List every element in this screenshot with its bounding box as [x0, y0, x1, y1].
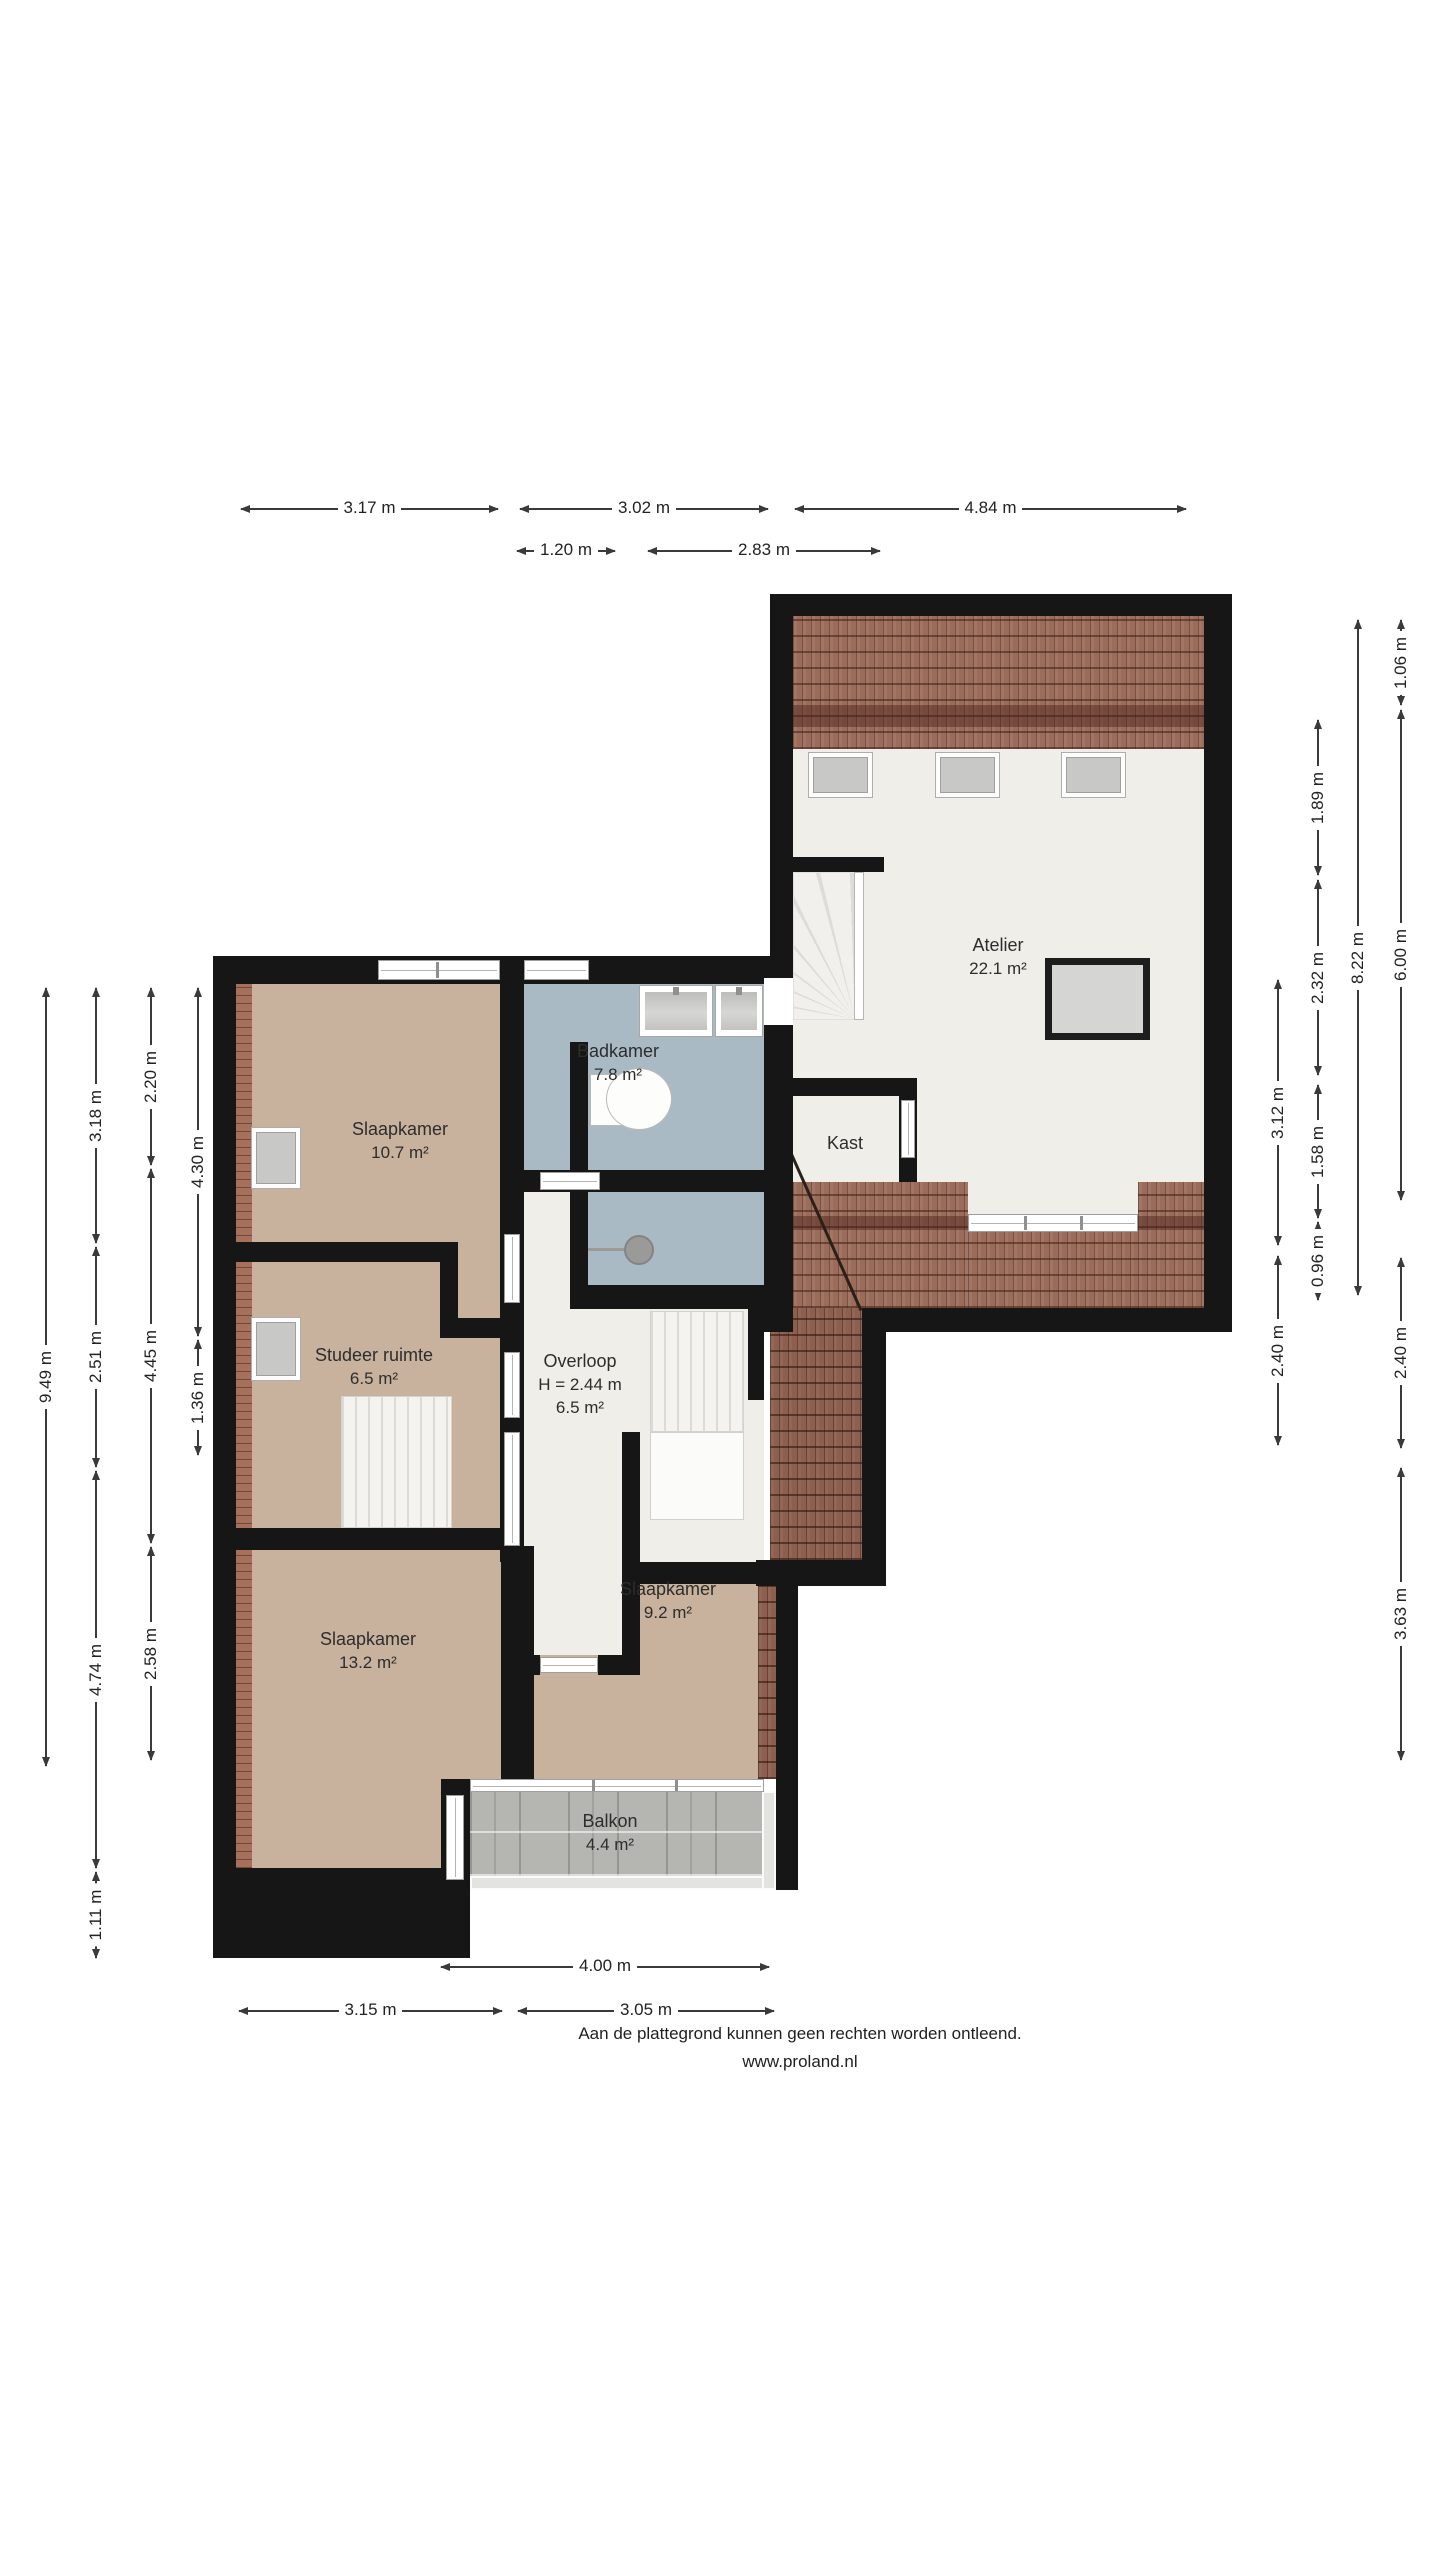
dimension-vertical: 1.36 m [197, 1340, 199, 1455]
dimension-horizontal: 1.20 m [517, 550, 615, 552]
dimension-vertical: 2.51 m [95, 1247, 97, 1467]
dimension-horizontal: 4.00 m [441, 1966, 769, 1968]
room-name: Slaapkamer [352, 1118, 448, 1141]
window-mullion [592, 1780, 595, 1791]
arrowhead-up-icon [1274, 979, 1282, 989]
window-atelier-south [968, 1214, 1138, 1232]
basin-bowl [645, 992, 707, 1030]
room-label-overloop: OverloopH = 2.44 m6.5 m² [538, 1350, 622, 1419]
dimension-label: 4.74 m [86, 1638, 106, 1702]
balkon-railing-bottom [470, 1876, 776, 1890]
shower-head-icon [624, 1235, 654, 1265]
door-corridor-slaapkamer3 [540, 1657, 598, 1673]
dimension-horizontal: 3.05 m [518, 2010, 774, 2012]
arrowhead-left-icon [647, 547, 657, 555]
roof-tiles-atelier-bottom-left [793, 1182, 968, 1308]
door-overloop-studeer [504, 1352, 520, 1418]
dimension-label: 2.83 m [732, 540, 796, 560]
dimension-label: 3.15 m [339, 2000, 403, 2020]
room-label-atelier: Atelier22.1 m² [969, 934, 1027, 980]
arrowhead-right-icon [871, 547, 881, 555]
dimension-vertical: 2.40 m [1400, 1258, 1402, 1448]
wall-corridor-door-jamb-right [598, 1655, 640, 1675]
shower-arm [588, 1248, 628, 1251]
dimension-label: 3.12 m [1268, 1081, 1288, 1145]
wall-corridor-left [501, 1546, 534, 1791]
roof-window-atelier-2 [936, 753, 999, 797]
dimension-label: 1.20 m [534, 540, 598, 560]
room-area: 13.2 m² [320, 1651, 416, 1674]
room-name: Badkamer [577, 1040, 659, 1063]
dimension-label: 4.30 m [188, 1130, 208, 1194]
arrowhead-right-icon [765, 2007, 775, 2015]
arrowhead-up-icon [1397, 1257, 1405, 1267]
dimension-label: 9.49 m [36, 1345, 56, 1409]
dimension-vertical: 2.40 m [1277, 1256, 1279, 1445]
balkon-railing-right [762, 1791, 776, 1890]
room-name: Studeer ruimte [315, 1344, 433, 1367]
room-label-slaapkamer1: Slaapkamer10.7 m² [352, 1118, 448, 1164]
arrowhead-up-icon [92, 1470, 100, 1480]
room-area: 4.4 m² [582, 1833, 637, 1856]
knee-wall-tiles-left [236, 984, 252, 1868]
wall-atelier-bottom [862, 1308, 1232, 1332]
door-gap-atelier-badkamer [764, 978, 793, 1025]
door-overloop-slaapkamer2 [504, 1432, 520, 1546]
washbasin-2 [716, 986, 762, 1036]
dimension-label: 8.22 m [1348, 926, 1368, 990]
wall-block-top [213, 956, 793, 984]
dimension-horizontal: 3.17 m [241, 508, 498, 510]
dimension-label: 1.89 m [1308, 766, 1328, 830]
dimension-label: 2.40 m [1268, 1319, 1288, 1383]
arrowhead-down-icon [1314, 866, 1322, 876]
wall-corridor-right [622, 1432, 640, 1675]
floor-plan: Atelier22.1 m²KastBadkamer7.8 m²Slaapkam… [0, 0, 1440, 2560]
wall-block-left [213, 956, 236, 1958]
room-area: 9.2 m² [620, 1601, 716, 1624]
room-area: 10.7 m² [352, 1141, 448, 1164]
door-kast [901, 1100, 915, 1158]
door-balkon [446, 1795, 464, 1880]
wall-bottom-band [213, 1868, 458, 1958]
roof-window-studeer [252, 1318, 300, 1380]
footer-website: www.proland.nl [0, 2052, 1440, 2072]
roof-stripe-bottom-right [1138, 1216, 1204, 1230]
dimension-vertical: 1.58 m [1317, 1085, 1319, 1218]
arrowhead-down-icon [194, 1446, 202, 1456]
wall-atelier-stair-stub [793, 857, 884, 872]
arrowhead-right-icon [493, 2007, 503, 2015]
arrowhead-up-icon [92, 1871, 100, 1881]
room-name: Kast [827, 1132, 863, 1155]
dimension-label: 2.32 m [1308, 946, 1328, 1010]
dimension-label: 2.40 m [1391, 1321, 1411, 1385]
arrowhead-up-icon [1397, 709, 1405, 719]
arrowhead-down-icon [92, 1234, 100, 1244]
dimension-label: 2.20 m [141, 1045, 161, 1109]
window-mullion [1024, 1216, 1027, 1230]
room-label-slaapkamer2: Slaapkamer13.2 m² [320, 1628, 416, 1674]
arrowhead-right-icon [606, 547, 616, 555]
dimension-horizontal: 4.84 m [795, 508, 1186, 510]
room-label-studeer: Studeer ruimte6.5 m² [315, 1344, 433, 1390]
roof-window-slaapkamer1 [252, 1128, 300, 1188]
dimension-label: 3.05 m [614, 2000, 678, 2020]
room-name: Atelier [969, 934, 1027, 957]
basin-tap-icon [673, 987, 679, 995]
room-name: Balkon [582, 1810, 637, 1833]
floor-overloop-corridor [534, 1546, 622, 1655]
dimension-label: 1.06 m [1391, 631, 1411, 695]
window-mullion [675, 1780, 678, 1791]
dimension-label: 3.02 m [612, 498, 676, 518]
dimension-vertical: 3.18 m [95, 988, 97, 1243]
dimension-label: 1.36 m [188, 1366, 208, 1430]
arrowhead-left-icon [240, 505, 250, 513]
wall-stairwell-east [748, 1308, 764, 1400]
wall-valley-right [862, 1308, 886, 1586]
arrowhead-down-icon [147, 1534, 155, 1544]
stairs-studeer [341, 1396, 452, 1528]
arrowhead-up-icon [1397, 619, 1405, 629]
room-area: 7.8 m² [577, 1063, 659, 1086]
dimension-label: 4.00 m [573, 1956, 637, 1976]
door-badkamer [540, 1172, 600, 1190]
wall-atelier-right [1204, 594, 1232, 1332]
arrowhead-down-icon [1314, 1209, 1322, 1219]
dimension-vertical: 4.30 m [197, 988, 199, 1336]
arrowhead-up-icon [92, 1246, 100, 1256]
window-mullion [1080, 1216, 1083, 1230]
dimension-vertical: 1.06 m [1400, 620, 1402, 705]
arrowhead-up-icon [194, 987, 202, 997]
room-label-kast: Kast [827, 1132, 863, 1155]
dimension-vertical: 9.49 m [45, 988, 47, 1766]
room-name: Slaapkamer [620, 1578, 716, 1601]
wall-shower-bottom [570, 1285, 764, 1309]
arrowhead-down-icon [194, 1327, 202, 1337]
room-area: 22.1 m² [969, 957, 1027, 980]
arrowhead-down-icon [1314, 1066, 1322, 1076]
window-top-badkamer [524, 960, 589, 980]
roof-ridge-stripe [793, 705, 1204, 727]
stairs-atelier-winder [793, 872, 856, 1020]
roof-tiles-valley [770, 1308, 862, 1560]
wall-slk1-studeer [236, 1242, 458, 1262]
dimension-vertical: 1.89 m [1317, 720, 1319, 875]
arrowhead-up-icon [1314, 1084, 1322, 1094]
dimension-label: 6.00 m [1391, 923, 1411, 987]
stairwell-void [650, 1432, 744, 1520]
arrowhead-up-icon [42, 987, 50, 997]
arrowhead-left-icon [517, 2007, 527, 2015]
dimension-vertical: 2.32 m [1317, 880, 1319, 1075]
room-label-badkamer: Badkamer7.8 m² [577, 1040, 659, 1086]
arrowhead-down-icon [147, 1156, 155, 1166]
footer-disclaimer: Aan de plattegrond kunnen geen rechten w… [0, 2024, 1440, 2044]
arrowhead-right-icon [1177, 505, 1187, 513]
dimension-label: 2.58 m [141, 1622, 161, 1686]
arrowhead-up-icon [147, 1546, 155, 1556]
roof-tiles-atelier-top [793, 616, 1204, 749]
wall-badkamer-right [764, 984, 793, 1332]
arrowhead-down-icon [92, 1458, 100, 1468]
roof-tiles-side-strip [758, 1584, 776, 1779]
dimension-vertical: 1.11 m [95, 1872, 97, 1958]
basin-bowl [721, 992, 757, 1030]
arrowhead-left-icon [238, 2007, 248, 2015]
dimension-label: 1.58 m [1308, 1120, 1328, 1184]
window-mullion [436, 962, 439, 978]
dimension-vertical: 4.74 m [95, 1471, 97, 1868]
arrowhead-down-icon [1354, 1286, 1362, 1296]
washbasin-1 [640, 986, 712, 1036]
room-name: Slaapkamer [320, 1628, 416, 1651]
arrowhead-up-icon [1274, 1255, 1282, 1265]
dimension-label: 4.45 m [141, 1324, 161, 1388]
roof-window-atelier-1 [809, 753, 872, 797]
room-label-slaapkamer3: Slaapkamer9.2 m² [620, 1578, 716, 1624]
arrowhead-up-icon [1314, 719, 1322, 729]
arrowhead-left-icon [794, 505, 804, 513]
room-area: 6.5 m² [315, 1367, 433, 1390]
dimension-label: 3.18 m [86, 1084, 106, 1148]
basin-tap-icon [736, 987, 742, 995]
dimension-horizontal: 2.83 m [648, 550, 880, 552]
window-balkon-band [470, 1779, 764, 1792]
room-label-balkon: Balkon4.4 m² [582, 1810, 637, 1856]
arrowhead-up-icon [1397, 1467, 1405, 1477]
arrowhead-down-icon [42, 1757, 50, 1767]
arrowhead-up-icon [1314, 879, 1322, 889]
roof-tiles-atelier-bottom-right [1138, 1182, 1204, 1308]
arrowhead-down-icon [1397, 1439, 1405, 1449]
wall-atelier-top [770, 594, 1232, 616]
room-height: H = 2.44 m [538, 1373, 622, 1396]
wall-slk1-jog [440, 1262, 458, 1338]
arrowhead-left-icon [519, 505, 529, 513]
room-name: Overloop [538, 1350, 622, 1373]
arrowhead-right-icon [489, 505, 499, 513]
arrowhead-left-icon [516, 547, 526, 555]
arrowhead-down-icon [92, 1949, 100, 1959]
arrowhead-down-icon [1397, 1191, 1405, 1201]
arrowhead-up-icon [1354, 619, 1362, 629]
window-top-slaapkamer1 [378, 960, 500, 980]
stairs-main [650, 1311, 744, 1432]
arrowhead-up-icon [92, 987, 100, 997]
arrowhead-down-icon [1274, 1436, 1282, 1446]
roof-window-atelier-3 [1062, 753, 1125, 797]
arrowhead-up-icon [147, 1168, 155, 1178]
arrowhead-right-icon [759, 505, 769, 513]
arrowhead-down-icon [1397, 1751, 1405, 1761]
dimension-label: 0.96 m [1308, 1229, 1328, 1293]
dimension-vertical: 2.58 m [150, 1547, 152, 1760]
dimension-vertical: 6.00 m [1400, 710, 1402, 1200]
dimension-label: 3.63 m [1391, 1582, 1411, 1646]
arrowhead-left-icon [440, 1963, 450, 1971]
dimension-label: 4.84 m [959, 498, 1023, 518]
stairs-atelier-banister [854, 872, 864, 1020]
dimension-horizontal: 3.02 m [520, 508, 768, 510]
dimension-label: 2.51 m [86, 1325, 106, 1389]
arrowhead-down-icon [1274, 1236, 1282, 1246]
arrowhead-down-icon [1397, 696, 1405, 706]
atelier-table [1045, 958, 1150, 1040]
arrowhead-up-icon [194, 1339, 202, 1349]
door-overloop-slaapkamer1 [504, 1234, 520, 1303]
dimension-label: 3.17 m [338, 498, 402, 518]
arrowhead-down-icon [92, 1859, 100, 1869]
dimension-vertical: 3.63 m [1400, 1468, 1402, 1760]
arrowhead-right-icon [760, 1963, 770, 1971]
dimension-vertical: 0.96 m [1317, 1222, 1319, 1300]
wall-slk3-right [776, 1560, 798, 1890]
dimension-vertical: 8.22 m [1357, 620, 1359, 1295]
roof-tiles-atelier-bottom-mid [968, 1232, 1138, 1308]
dimension-vertical: 2.20 m [150, 988, 152, 1165]
dimension-vertical: 4.45 m [150, 1169, 152, 1543]
dimension-vertical: 3.12 m [1277, 980, 1279, 1245]
wall-studeer-bottom [213, 1528, 508, 1550]
room-area: 6.5 m² [538, 1396, 622, 1419]
dimension-label: 1.11 m [86, 1884, 106, 1947]
arrowhead-down-icon [147, 1751, 155, 1761]
arrowhead-up-icon [147, 987, 155, 997]
dimension-horizontal: 3.15 m [239, 2010, 502, 2012]
